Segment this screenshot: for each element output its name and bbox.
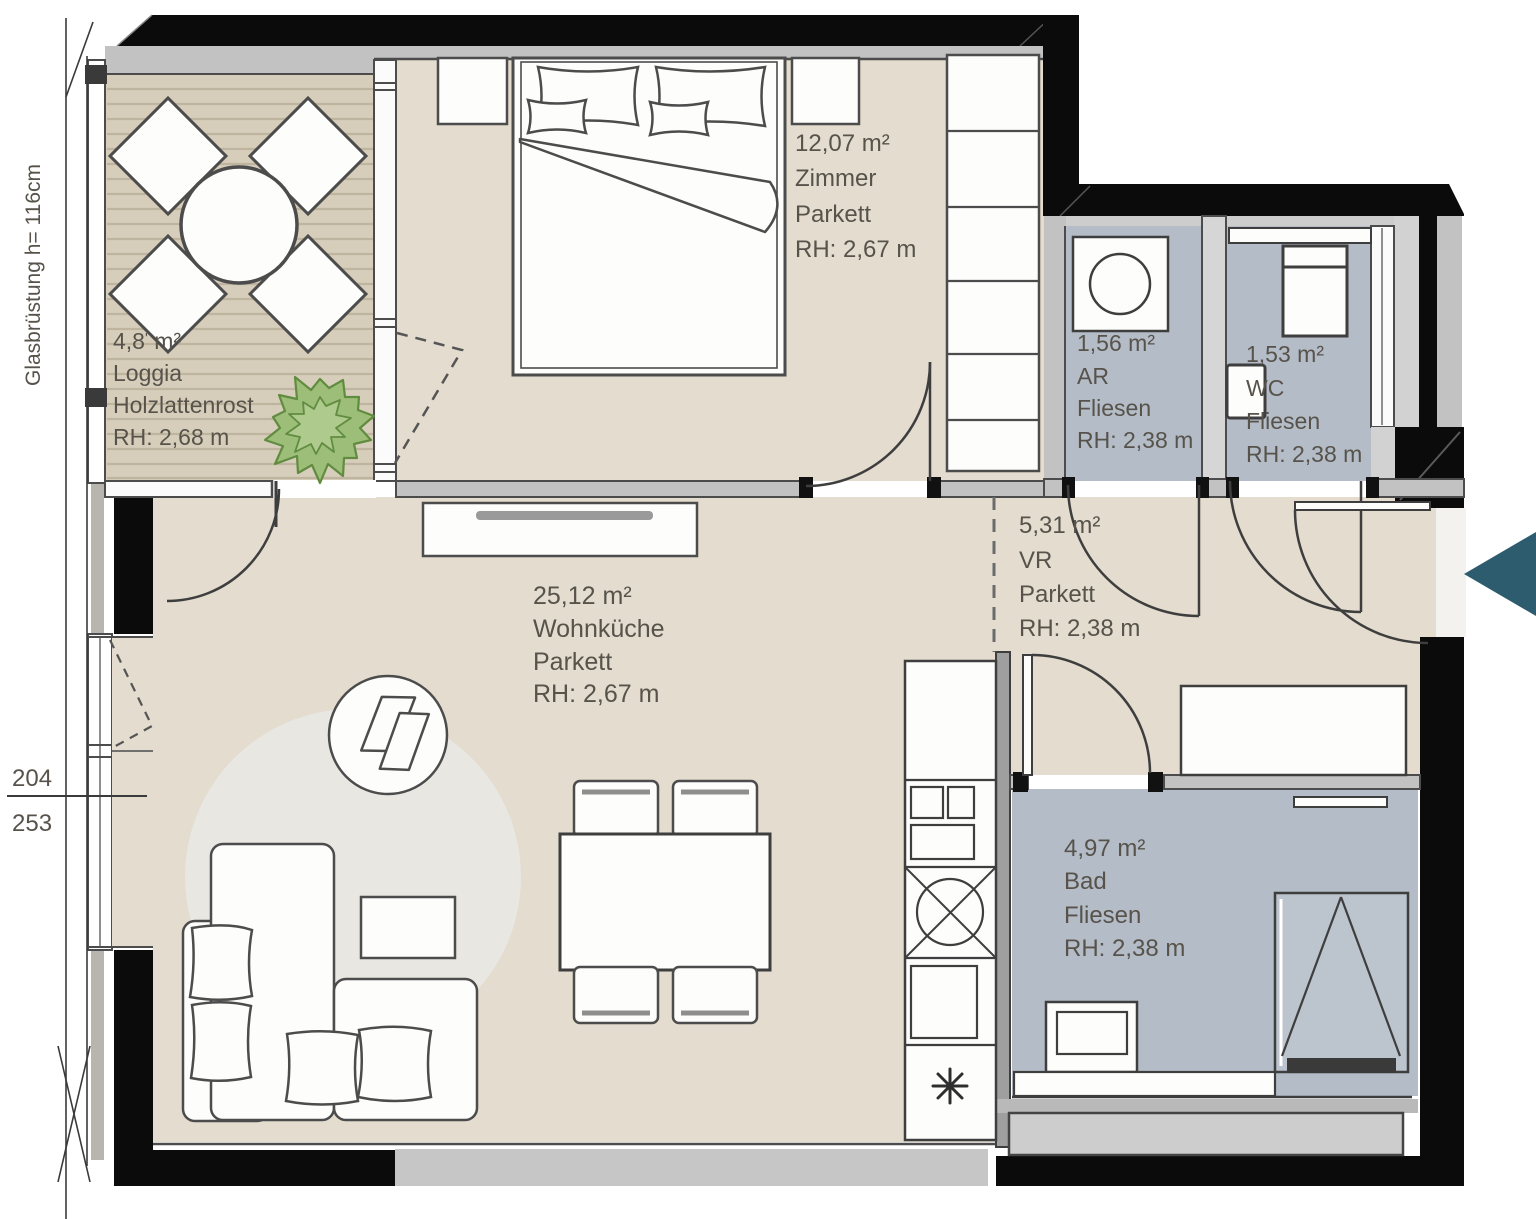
svg-text:Zimmer: Zimmer xyxy=(795,165,876,192)
svg-text:RH: 2,67 m: RH: 2,67 m xyxy=(795,236,916,263)
svg-text:Loggia: Loggia xyxy=(113,360,182,386)
svg-text:204: 204 xyxy=(12,765,52,792)
svg-text:25,12 m²: 25,12 m² xyxy=(533,582,632,610)
svg-text:1,56 m²: 1,56 m² xyxy=(1077,330,1155,356)
svg-text:Bad: Bad xyxy=(1064,868,1107,895)
svg-text:Fliesen: Fliesen xyxy=(1246,408,1320,434)
svg-text:AR: AR xyxy=(1077,363,1109,389)
svg-text:5,31 m²: 5,31 m² xyxy=(1019,512,1100,539)
svg-text:Fliesen: Fliesen xyxy=(1077,395,1151,421)
svg-text:Parkett: Parkett xyxy=(533,648,612,676)
svg-text:RH: 2,38 m: RH: 2,38 m xyxy=(1019,615,1140,642)
svg-text:Holzlattenrost: Holzlattenrost xyxy=(113,392,254,418)
svg-text:VR: VR xyxy=(1019,547,1052,574)
svg-text:Wohnküche: Wohnküche xyxy=(533,615,665,643)
svg-text:4,8' m²: 4,8' m² xyxy=(113,328,181,354)
svg-text:Parkett: Parkett xyxy=(795,201,871,228)
svg-text:Glasbrüstung h= 116cm: Glasbrüstung h= 116cm xyxy=(22,164,45,386)
svg-text:RH: 2,68 m: RH: 2,68 m xyxy=(113,424,229,450)
svg-text:RH: 2,38 m: RH: 2,38 m xyxy=(1246,441,1362,467)
svg-text:WC: WC xyxy=(1246,375,1284,401)
svg-text:253: 253 xyxy=(12,810,52,837)
svg-text:1,53 m²: 1,53 m² xyxy=(1246,341,1324,367)
svg-text:RH: 2,38 m: RH: 2,38 m xyxy=(1077,427,1193,453)
svg-text:4,97 m²: 4,97 m² xyxy=(1064,835,1145,862)
svg-text:RH: 2,67 m: RH: 2,67 m xyxy=(533,680,659,708)
svg-text:12,07 m²: 12,07 m² xyxy=(795,130,890,157)
svg-text:RH: 2,38 m: RH: 2,38 m xyxy=(1064,935,1185,962)
svg-text:Fliesen: Fliesen xyxy=(1064,902,1141,929)
svg-text:Parkett: Parkett xyxy=(1019,581,1095,608)
